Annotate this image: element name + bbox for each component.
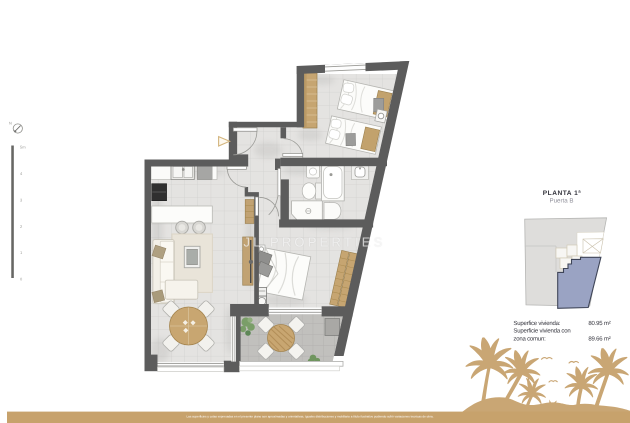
svg-text:Puerta B: Puerta B xyxy=(549,197,573,204)
svg-text:Las superficies y cotas expres: Las superficies y cotas expresadas en el… xyxy=(187,414,434,418)
svg-text:80.95 m²: 80.95 m² xyxy=(588,320,610,327)
svg-text:89.66 m²: 89.66 m² xyxy=(588,335,610,342)
svg-text:N: N xyxy=(9,122,12,126)
svg-text:zona comun:: zona comun: xyxy=(513,336,546,342)
svg-text:Superficie vivienda con: Superficie vivienda con xyxy=(513,327,570,334)
svg-text:5m: 5m xyxy=(20,145,26,150)
svg-text:Superfice vivienda:: Superfice vivienda: xyxy=(513,320,560,327)
svg-text:JL PROPERTIES: JL PROPERTIES xyxy=(244,235,386,250)
svg-text:PLANTA 1ª: PLANTA 1ª xyxy=(543,190,582,197)
